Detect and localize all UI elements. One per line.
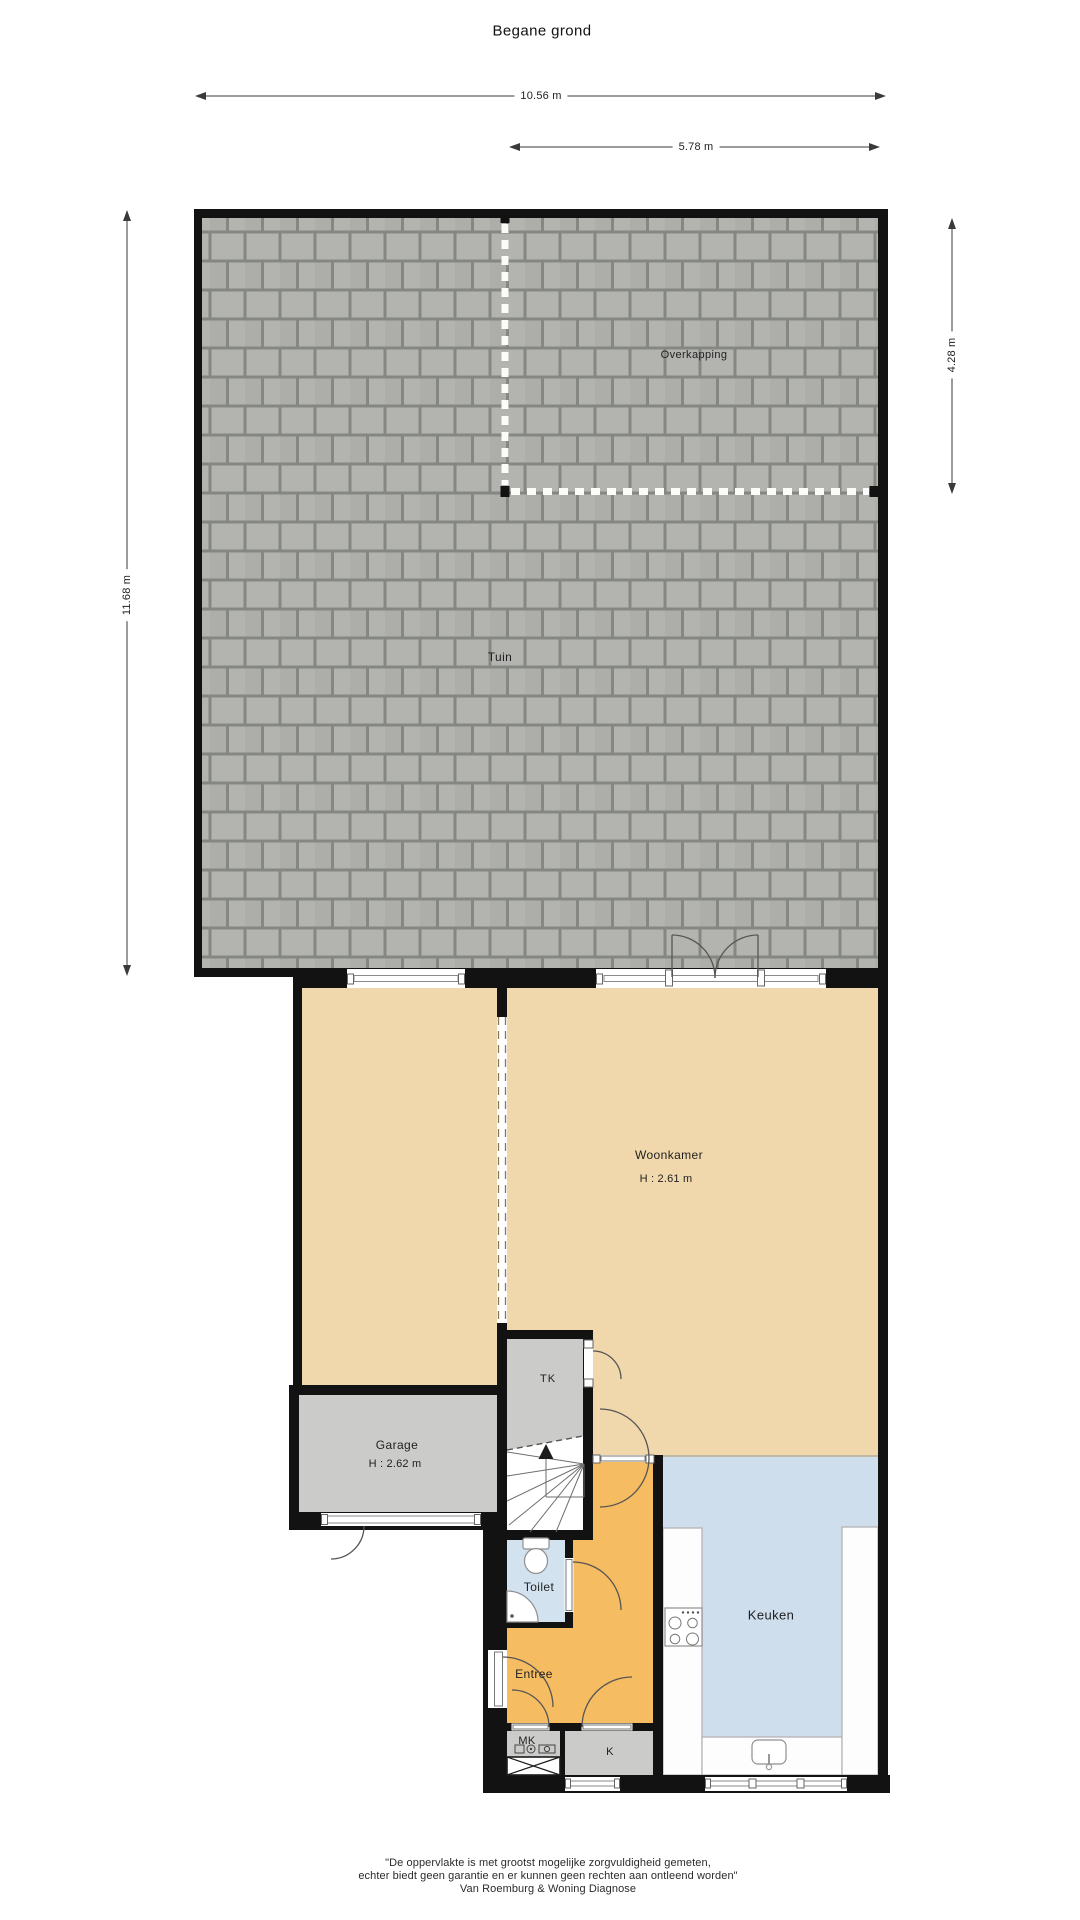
dimension-total-height: 11.68 m (121, 569, 133, 621)
dimension-overkapping-height: 4.28 m (946, 332, 958, 379)
dimension-overkapping-width: 5.78 m (673, 141, 720, 153)
window-k (565, 1777, 620, 1791)
garage-door (321, 1513, 481, 1559)
room-label-overkapping: Overkapping (661, 349, 728, 361)
disclaimer-line-1: "De oppervlakte is met grootst mogelijke… (385, 1857, 711, 1870)
room-label-tuin: Tuin (488, 650, 513, 664)
window-left (347, 969, 465, 988)
open-divider (497, 1017, 507, 1323)
disclaimer-line-3: Van Roemburg & Woning Diagnose (460, 1883, 636, 1896)
room-label-woonkamer: Woonkamer (635, 1148, 703, 1162)
room-height-woonkamer: H : 2.61 m (640, 1173, 693, 1185)
floor-plan-page: Begane grond 10.56 m 5.78 m 11.68 m 4.28… (0, 0, 1080, 1920)
toilet-fixture (523, 1538, 549, 1574)
garage-floor (299, 1395, 497, 1513)
stove (665, 1608, 702, 1646)
room-label-mk: MK (518, 1735, 535, 1747)
room-label-toilet: Toilet (524, 1580, 554, 1594)
dimension-total-width: 10.56 m (514, 90, 567, 102)
room-height-garage: H : 2.62 m (369, 1458, 422, 1470)
room-label-tk: TK (540, 1373, 556, 1385)
tk-floor (507, 1339, 583, 1450)
disclaimer-line-2: echter biedt geen garantie en er kunnen … (358, 1870, 737, 1883)
window-keuken (705, 1777, 847, 1791)
floor-plan-drawing (0, 0, 1080, 1920)
room-label-entree: Entree (515, 1667, 553, 1681)
room-label-garage: Garage (376, 1438, 418, 1452)
room-label-k: K (606, 1746, 614, 1758)
room-label-keuken: Keuken (748, 1608, 795, 1623)
page-title: Begane grond (492, 23, 591, 40)
tuin-paving (196, 211, 884, 973)
